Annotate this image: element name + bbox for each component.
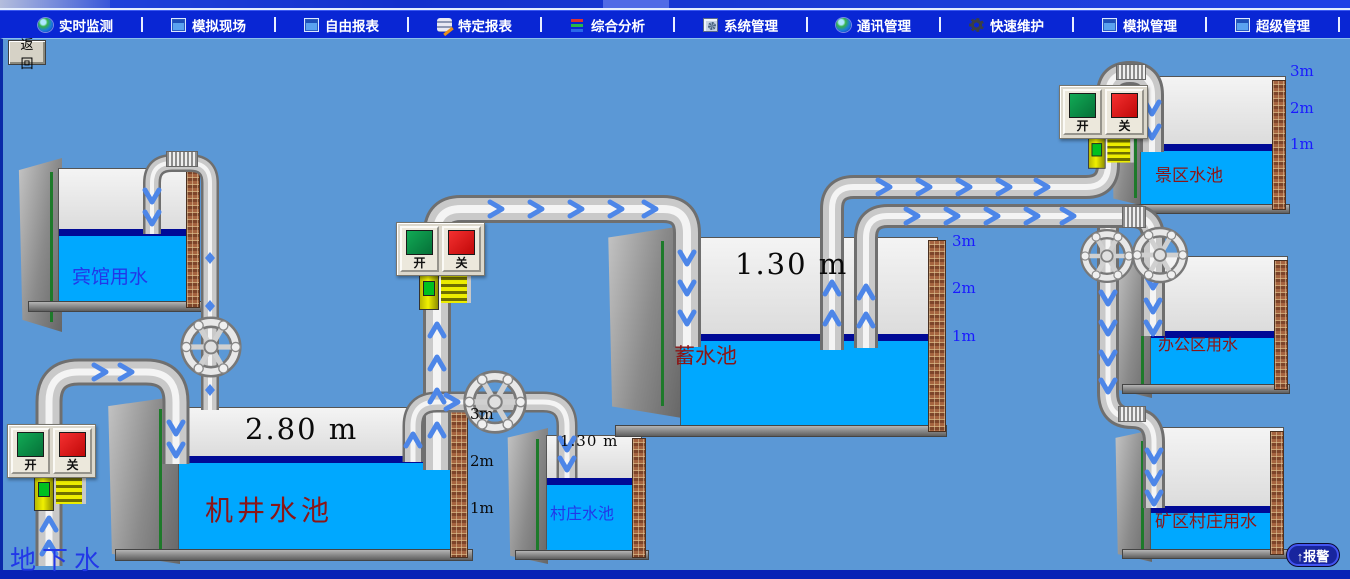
pump-switch-scenic: 开 关 xyxy=(1059,85,1148,139)
scada-water-system-screen: 实时监测 模拟现场 自由报表 特定报表 综合分析 系统管理 通讯 xyxy=(0,0,1350,579)
off-label: 关 xyxy=(455,257,467,269)
tank-label-reservoir: 蓄水池 xyxy=(674,340,737,370)
pump-on-button[interactable] xyxy=(406,230,433,255)
alarm-button[interactable]: ↑报警 xyxy=(1287,544,1339,566)
pump-off-button[interactable] xyxy=(448,230,475,255)
level-value-well: 2.80 m xyxy=(245,412,358,446)
pipe-coupler xyxy=(1118,406,1146,422)
back-button[interactable]: 返回 xyxy=(8,40,46,65)
switch-off-cell: 关 xyxy=(1105,89,1144,135)
scale-mark: 2m xyxy=(1290,101,1314,116)
switch-on-cell: 开 xyxy=(11,428,50,474)
switch-off-cell: 关 xyxy=(53,428,92,474)
pump-on-button[interactable] xyxy=(17,432,44,457)
switch-on-cell: 开 xyxy=(1063,89,1102,135)
scale-mark: 1m xyxy=(1290,137,1314,152)
scale-mark: 3m xyxy=(1290,64,1314,79)
tank-label-office: 办公区用水 xyxy=(1158,331,1238,355)
level-value-village: 1.30 m xyxy=(560,432,618,450)
scale-mark: 1m xyxy=(952,329,976,344)
off-label: 关 xyxy=(66,459,78,471)
pump-off-button[interactable] xyxy=(1111,93,1138,118)
scale-mark: 2m xyxy=(470,454,494,469)
level-value-reservoir: 1.30 m xyxy=(735,247,848,281)
scale-mark: 2m xyxy=(952,281,976,296)
pump-on-button[interactable] xyxy=(1069,93,1096,118)
pump-switch-well: 开 关 xyxy=(396,222,485,276)
off-label: 关 xyxy=(1118,120,1130,132)
tank-label-well: 机井水池 xyxy=(205,489,333,529)
tank-label-village: 村庄水池 xyxy=(550,500,614,524)
pipe-coupler xyxy=(166,151,198,167)
scale-mark: 3m xyxy=(470,407,494,422)
groundwater-source-label: 地下水 xyxy=(10,540,106,577)
switch-on-cell: 开 xyxy=(400,226,439,272)
tank-label-hotel: 宾馆用水 xyxy=(72,262,148,289)
scale-mark: 1m xyxy=(470,501,494,516)
on-label: 开 xyxy=(413,257,425,269)
switch-off-cell: 关 xyxy=(442,226,481,272)
pump-switch-groundwater: 开 关 xyxy=(7,424,96,478)
tank-label-mine: 矿区村庄用水 xyxy=(1155,507,1257,532)
scale-mark: 3m xyxy=(952,234,976,249)
pipe-coupler xyxy=(1122,206,1146,228)
on-label: 开 xyxy=(1076,120,1088,132)
pump-off-button[interactable] xyxy=(59,432,86,457)
pipe-coupler xyxy=(1116,64,1146,80)
on-label: 开 xyxy=(24,459,36,471)
tank-label-scenic: 景区水池 xyxy=(1155,161,1223,186)
